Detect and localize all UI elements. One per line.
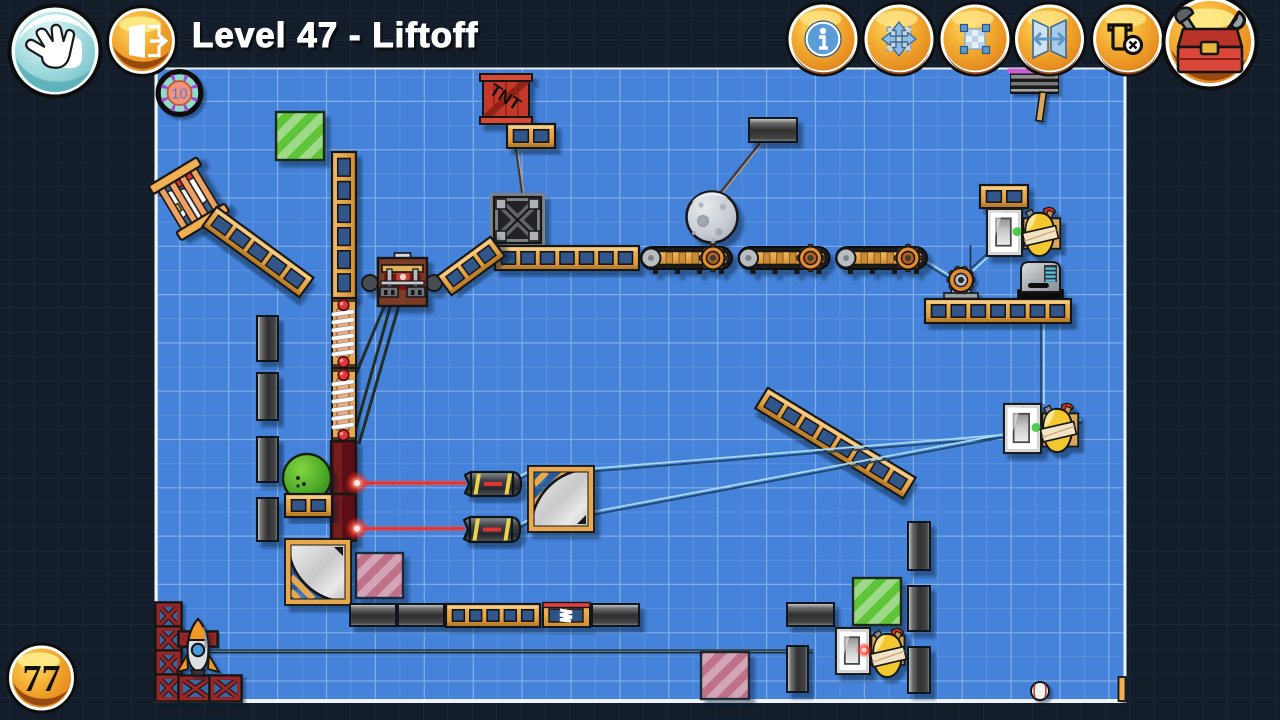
svg-text:Level 47 - Liftoff: Level 47 - Liftoff (192, 16, 478, 55)
svg-text:77: 77 (23, 658, 61, 700)
svg-text:10: 10 (171, 87, 187, 103)
